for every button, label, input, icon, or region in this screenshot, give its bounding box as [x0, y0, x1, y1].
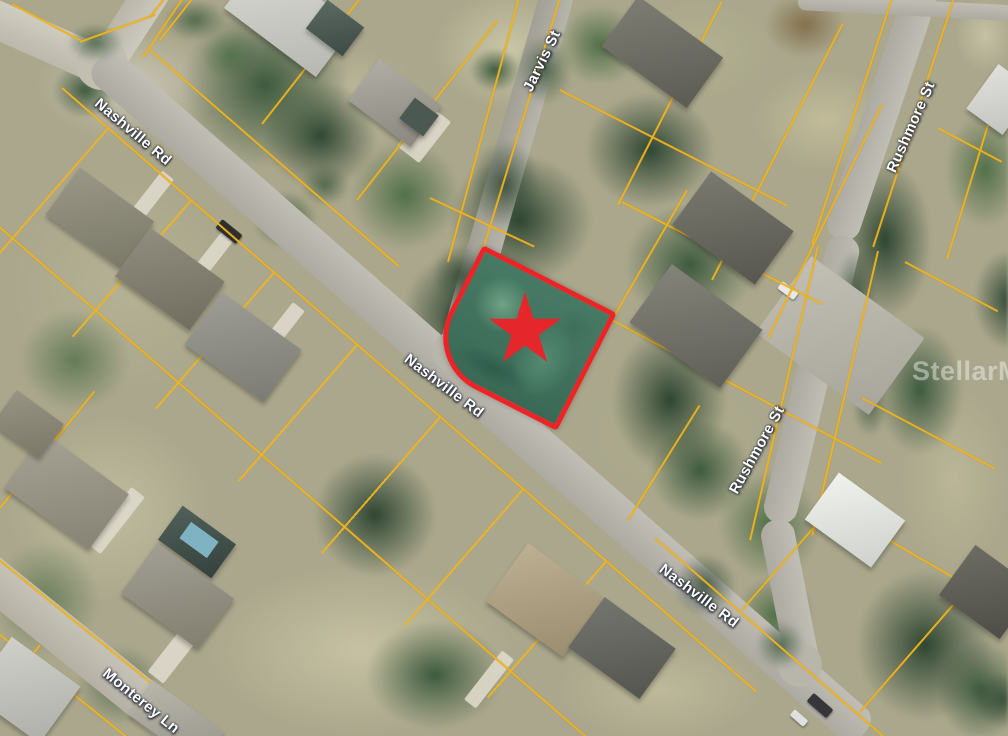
street-label-rushmore-st-upper: Rushmore St: [883, 79, 938, 175]
aerial-map: Nashville Rd Jarvis St Rushmore St Rushm…: [0, 0, 1008, 736]
street-label-nashville-rd-middle: Nashville Rd: [401, 351, 487, 422]
watermark: StellarMLS: [912, 356, 1008, 387]
street-label-nashville-rd-upper: Nashville Rd: [91, 95, 175, 169]
street-label-monterey-ln: Monterey Ln: [99, 665, 182, 736]
street-label-jarvis-st: Jarvis St: [520, 28, 564, 95]
street-label-nashville-rd-lower: Nashville Rd: [656, 561, 742, 632]
labels-layer: Nashville Rd Jarvis St Rushmore St Rushm…: [0, 0, 1008, 736]
street-label-rushmore-st-lower: Rushmore St: [726, 403, 788, 497]
